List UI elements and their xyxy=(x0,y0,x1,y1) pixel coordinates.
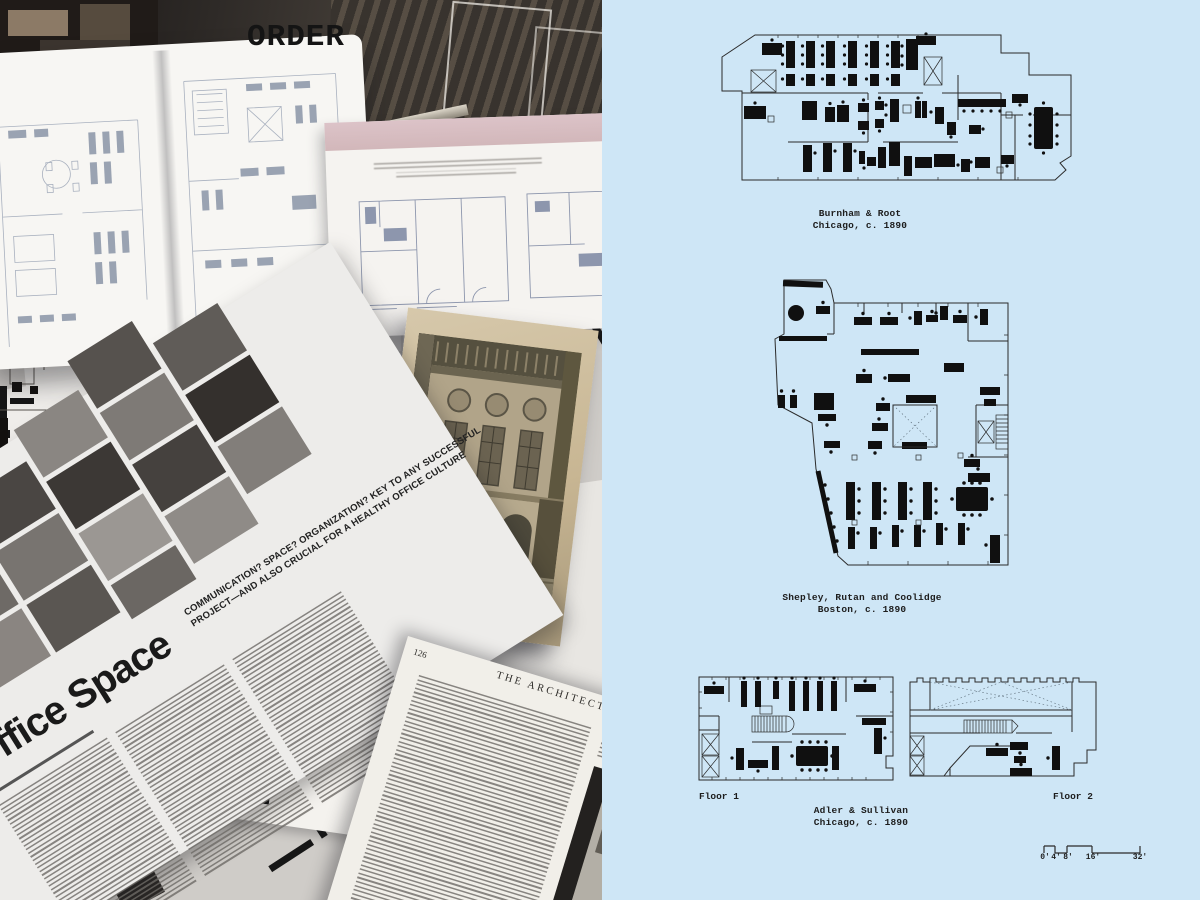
book-left-page-plan xyxy=(0,59,166,359)
floor-1-label: Floor 1 xyxy=(699,791,739,802)
scale-label-0: 0' xyxy=(1040,853,1050,862)
publication-spread: ORDER xyxy=(0,0,1200,900)
scale-label-16: 16' xyxy=(1086,853,1100,862)
plan-location: Boston, c. 1890 xyxy=(742,604,982,616)
scale-label-8: 8' xyxy=(1063,853,1073,862)
booklet-caption-text xyxy=(374,155,542,169)
caption-adler-sullivan: Adler & Sullivan Chicago, c. 1890 xyxy=(741,805,981,828)
caption-shepley: Shepley, Rutan and Coolidge Boston, c. 1… xyxy=(742,592,982,615)
floor-plans-panel: Burnham & Root Chicago, c. 1890 xyxy=(602,0,1200,900)
page-number: 126 xyxy=(412,647,428,661)
scale-label-32: 32' xyxy=(1133,853,1147,862)
scale-bar: 0' 4' 8' 16' 32' xyxy=(1043,842,1143,866)
plan-name: Shepley, Rutan and Coolidge xyxy=(742,592,982,604)
scale-label-4: 4' xyxy=(1051,853,1061,862)
floor-plan-adler-sullivan-floor1 xyxy=(696,672,896,784)
plan-name: Adler & Sullivan xyxy=(741,805,981,817)
photo-collage: ORDER xyxy=(0,0,602,900)
floor-plan-burnham-root xyxy=(718,30,1074,188)
plan-location: Chicago, c. 1890 xyxy=(740,220,980,232)
order-title: ORDER xyxy=(247,20,345,55)
plan-location: Chicago, c. 1890 xyxy=(741,817,981,829)
plan-name: Burnham & Root xyxy=(740,208,980,220)
caption-burnham-root: Burnham & Root Chicago, c. 1890 xyxy=(740,208,980,231)
floor-plan-shepley-rutan-coolidge xyxy=(768,275,1013,570)
floor-2-label: Floor 2 xyxy=(1053,791,1093,802)
floor-plan-adler-sullivan-floor2 xyxy=(906,670,1102,780)
